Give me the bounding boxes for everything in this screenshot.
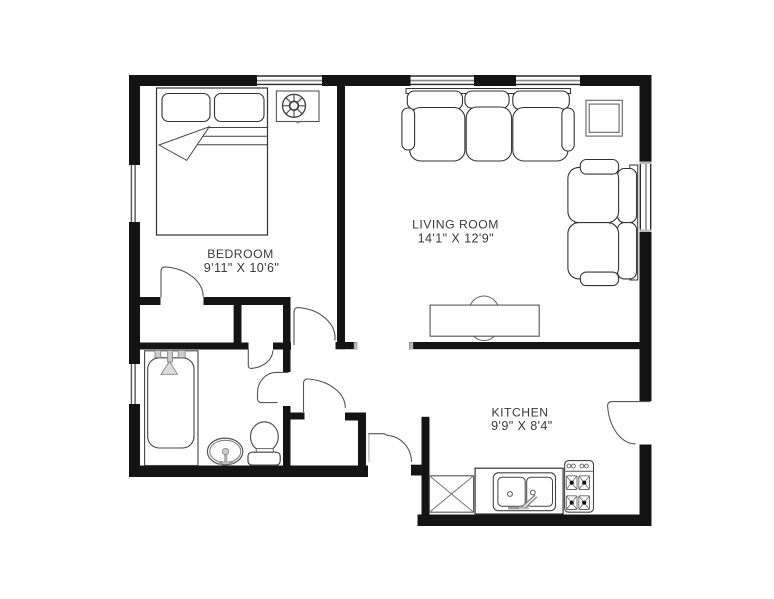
- svg-text:9'9" X 8'4": 9'9" X 8'4": [491, 419, 553, 433]
- svg-text:LIVING ROOM: LIVING ROOM: [412, 218, 499, 232]
- svg-text:9'11" X 10'6": 9'11" X 10'6": [204, 261, 279, 275]
- svg-text:BEDROOM: BEDROOM: [207, 247, 273, 261]
- svg-text:KITCHEN: KITCHEN: [492, 405, 549, 419]
- svg-text:14'1" X 12'9": 14'1" X 12'9": [418, 232, 494, 246]
